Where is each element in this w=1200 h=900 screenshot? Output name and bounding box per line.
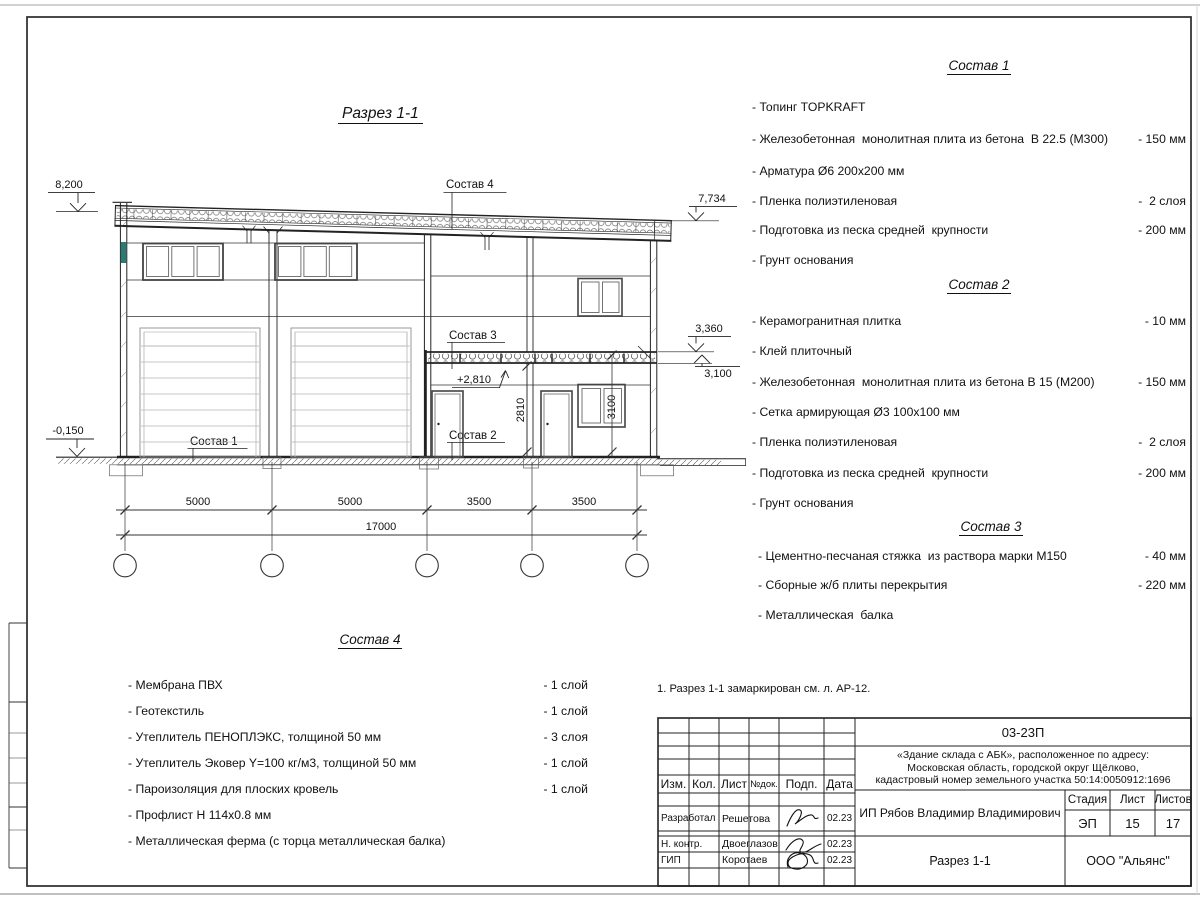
list-item: - Цементно-песчаная стяжка из раствора м…	[758, 549, 1186, 563]
composition-1: Состав 1 - Топинг TOPKRAFT - Железобетон…	[752, 58, 1186, 278]
windows	[143, 244, 625, 428]
dim-17000: 17000	[356, 521, 406, 533]
ground-floor	[56, 457, 746, 476]
section-title: Разрез 1-1	[338, 105, 423, 123]
role-gip: ГИП	[658, 852, 722, 868]
list-item: - Металлическая балка	[758, 608, 1186, 622]
stage-value: ЭП	[1065, 810, 1110, 836]
axis-bubble-label-g: Г	[522, 558, 542, 572]
wall-girts	[127, 243, 650, 385]
list-item: - Керамогранитная плитка- 10 мм	[752, 314, 1186, 328]
list-item: - Топинг TOPKRAFT	[752, 100, 1186, 114]
role-developer: Разработал	[658, 806, 722, 831]
list-item: - Арматура Ø6 200x200 мм	[752, 164, 1186, 178]
elevation-marks	[46, 193, 740, 457]
sheet-note: 1. Разрез 1-1 замаркирован см. л. АР-12.	[657, 683, 870, 695]
drawing-sheet: Разрез 1-1 Состав 1 - Топинг TOPKRAFT - …	[0, 0, 1200, 900]
sheet-title-cell: Разрез 1-1	[855, 836, 1065, 886]
elevation-plus2810: +2,810	[450, 374, 498, 386]
composition-2: Состав 2 - Керамогранитная плитка- 10 мм…	[752, 277, 1186, 517]
label-leaders	[188, 192, 507, 461]
list-item: - Металлическая ферма (с торца металличе…	[128, 834, 588, 848]
col-podp: Подп.	[779, 775, 824, 793]
dim-2810-vertical: 2810	[514, 390, 528, 430]
list-item: - Мембрана ПВХ- 1 слой	[128, 678, 588, 692]
dim-5000-b: 5000	[330, 496, 370, 508]
client-name: ИП Рябов Владимир Владимирович	[855, 790, 1065, 836]
elevation-minus0150: -0,150	[44, 425, 92, 437]
axis-bubble-label-b: Б	[262, 558, 282, 572]
dim-3500-b: 3500	[564, 496, 604, 508]
list-item: - Утеплитель Эковер Y=100 кг/м3, толщино…	[128, 756, 588, 770]
axis-bubble-label-v: В	[417, 558, 437, 572]
list-item: - Сетка армирующая Ø3 100x100 мм	[752, 405, 1186, 419]
roof-assembly	[114, 205, 671, 242]
project-name: «Здание склада с АБК», расположенное по …	[855, 746, 1191, 793]
label-sostav1: Состав 1	[190, 436, 238, 448]
list-item: - Грунт основания	[752, 496, 1186, 510]
sheets-label: Листов	[1155, 790, 1191, 810]
col-izm: Изм.	[658, 775, 689, 793]
name-developer: Решетова	[719, 806, 782, 831]
composition-4-title: Состав 4	[140, 632, 600, 647]
label-sostav3: Состав 3	[449, 330, 497, 342]
list-item: - Подготовка из песка средней крупности-…	[752, 223, 1186, 237]
axis-bubbles	[114, 554, 649, 577]
sheets-total: 17	[1155, 810, 1191, 836]
composition-3-title: Состав 3	[774, 519, 1200, 534]
elevation-8200: 8,200	[47, 179, 91, 191]
list-item: - Грунт основания	[752, 253, 1186, 267]
col-list: Лист	[719, 775, 749, 793]
label-sostav4: Состав 4	[446, 179, 494, 191]
sheet-label: Лист	[1110, 790, 1155, 810]
dim-3500-a: 3500	[459, 496, 499, 508]
composition-1-title: Состав 1	[762, 58, 1196, 73]
dim-5000-a: 5000	[178, 496, 218, 508]
signatures	[786, 810, 821, 869]
date-developer: 02.23	[824, 806, 855, 831]
role-ncontrol: Н. контр.	[658, 836, 722, 852]
list-item: - Железобетонная монолитная плита из бет…	[752, 375, 1186, 389]
section-title-text: Разрез 1-1	[338, 105, 423, 124]
composition-4: Состав 4 - Мембрана ПВХ- 1 слой - Геотек…	[128, 632, 588, 857]
list-item: - Профлист Н 114x0.8 мм	[128, 808, 588, 822]
elevation-3360: 3,360	[688, 323, 730, 335]
second-floor-slab	[426, 346, 657, 363]
list-item: - Клей плиточный	[752, 344, 1186, 358]
list-item: - Пленка полиэтиленовая- 2 слоя	[752, 194, 1186, 208]
list-item: - Геотекстиль- 1 слой	[128, 704, 588, 718]
margin-tables	[9, 623, 27, 868]
walls-and-columns	[113, 202, 657, 457]
col-ndok: №док.	[749, 775, 779, 793]
garage-doors	[140, 328, 411, 457]
axis-bubble-label-a: А	[115, 558, 135, 572]
list-item: - Сборные ж/б плиты перекрытия- 220 мм	[758, 578, 1186, 592]
date-ncontrol: 02.23	[824, 836, 855, 852]
col-kol: Кол.	[689, 775, 719, 793]
col-data: Дата	[824, 775, 855, 793]
sheet-number: 15	[1110, 810, 1155, 836]
list-item: - Железобетонная монолитная плита из бет…	[752, 132, 1186, 146]
composition-2-title: Состав 2	[762, 277, 1196, 292]
list-item: - Пленка полиэтиленовая- 2 слоя	[752, 435, 1186, 449]
list-item: - Утеплитель ПЕНОПЛЭКС, толщиной 50 мм- …	[128, 730, 588, 744]
elevation-7734: 7,734	[690, 193, 734, 205]
composition-3: Состав 3 - Цементно-песчаная стяжка из р…	[752, 519, 1186, 629]
date-gip: 02.23	[824, 852, 855, 868]
name-ncontrol: Двоеглазов	[719, 836, 782, 852]
dim-3100-vertical: 3100	[605, 387, 619, 427]
elevation-3100: 3,100	[697, 368, 739, 380]
doc-number: 03-23П	[855, 718, 1191, 746]
doors	[432, 391, 572, 457]
company-name: ООО "Альянс"	[1065, 836, 1191, 886]
label-sostav2: Состав 2	[449, 430, 497, 442]
name-gip: Коротаев	[719, 852, 782, 868]
list-item: - Подготовка из песка средней крупности-…	[752, 466, 1186, 480]
axis-bubble-label-d: Д	[627, 558, 647, 572]
list-item: - Пароизоляция для плоских кровель- 1 сл…	[128, 782, 588, 796]
stage-label: Стадия	[1065, 790, 1110, 810]
